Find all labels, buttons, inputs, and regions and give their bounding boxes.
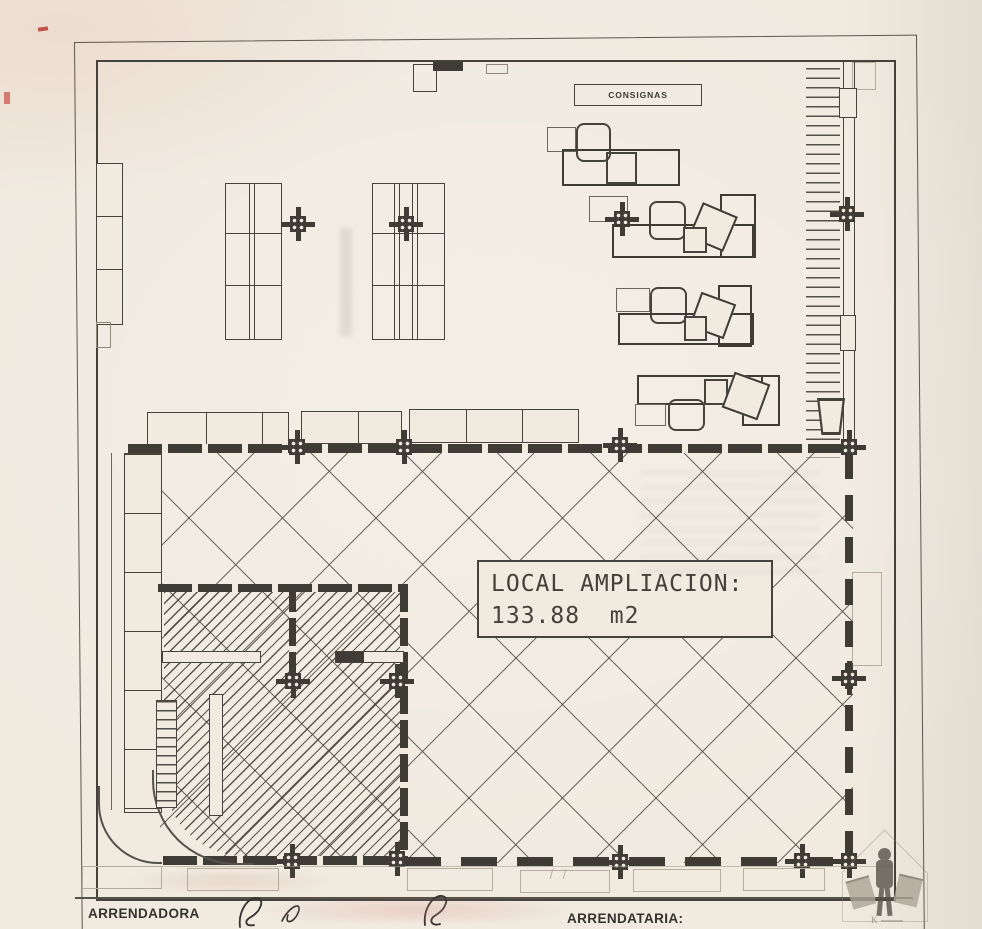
storefront-bay (633, 869, 721, 892)
red-scan-mark (38, 26, 48, 31)
column-marker (603, 428, 637, 462)
column-marker (380, 664, 414, 698)
watermark-subtext-line (881, 920, 903, 922)
interior-shelf (335, 651, 404, 663)
consignas-label: CONSIGNAS (608, 90, 668, 100)
column-marker (281, 207, 315, 241)
property-line-right (845, 453, 853, 865)
counter-shelf (147, 412, 289, 445)
table-divider (373, 285, 444, 286)
counter-divider (206, 413, 207, 444)
bleed-through-smudge (640, 470, 820, 580)
side-table (635, 404, 666, 426)
table-divider (254, 184, 255, 339)
door-swing-mark (550, 869, 567, 879)
local-wall-top (158, 584, 408, 592)
counter-divider (262, 413, 263, 444)
column-marker (276, 664, 310, 698)
column-marker (830, 197, 864, 231)
facade-mullion (843, 62, 855, 455)
bleed-through-smudge (120, 872, 340, 890)
column-marker (832, 661, 866, 695)
sidewalk-line (96, 866, 893, 867)
watermark-letter: K (871, 915, 878, 925)
table-divider (249, 184, 250, 339)
wall-line (111, 453, 112, 810)
counter-divider (358, 412, 359, 443)
desk-monitor (606, 152, 637, 184)
demising-wall (128, 444, 853, 453)
shelf-dark-segment (336, 652, 364, 662)
bleed-through-smudge (250, 899, 580, 921)
wall-shelf-strip (96, 163, 123, 325)
top-wall-fixture (852, 62, 876, 90)
column-marker (280, 430, 314, 464)
shelf-divider (97, 216, 122, 217)
shopper-body (876, 860, 893, 888)
mullion-joint (839, 88, 857, 118)
stair-strip (156, 700, 177, 808)
facade-blank-label (852, 572, 882, 666)
bin-inner (818, 401, 844, 432)
top-wall-fixture (486, 64, 508, 74)
storefront-bay (743, 868, 825, 891)
local-label-line2: 133.88 m2 (491, 600, 759, 632)
column-marker (832, 430, 866, 464)
chair (668, 399, 705, 431)
red-scan-mark (4, 92, 10, 104)
counter-shelf (409, 409, 579, 443)
local-wall-right (400, 584, 408, 865)
consignas-box: CONSIGNAS (574, 84, 702, 106)
side-table (616, 288, 650, 312)
counter-divider (522, 410, 523, 442)
shelf-divider (97, 269, 122, 270)
bleed-through-smudge (340, 228, 352, 336)
interior-shelf (162, 651, 261, 663)
counter-island (209, 694, 223, 816)
display-table (225, 183, 282, 340)
counter-divider (466, 410, 467, 442)
desk-monitor (684, 316, 707, 341)
top-wall-fixture (433, 62, 463, 71)
mullion-joint (840, 315, 856, 351)
storefront-bay (407, 868, 493, 891)
column-marker (389, 207, 423, 241)
column-marker (387, 430, 421, 464)
scanned-floor-plan-sheet: CONSIGNAS (0, 0, 982, 929)
brand-watermark: K (833, 840, 937, 928)
wall-shelf-step (96, 322, 111, 348)
desk-monitor (683, 227, 707, 253)
